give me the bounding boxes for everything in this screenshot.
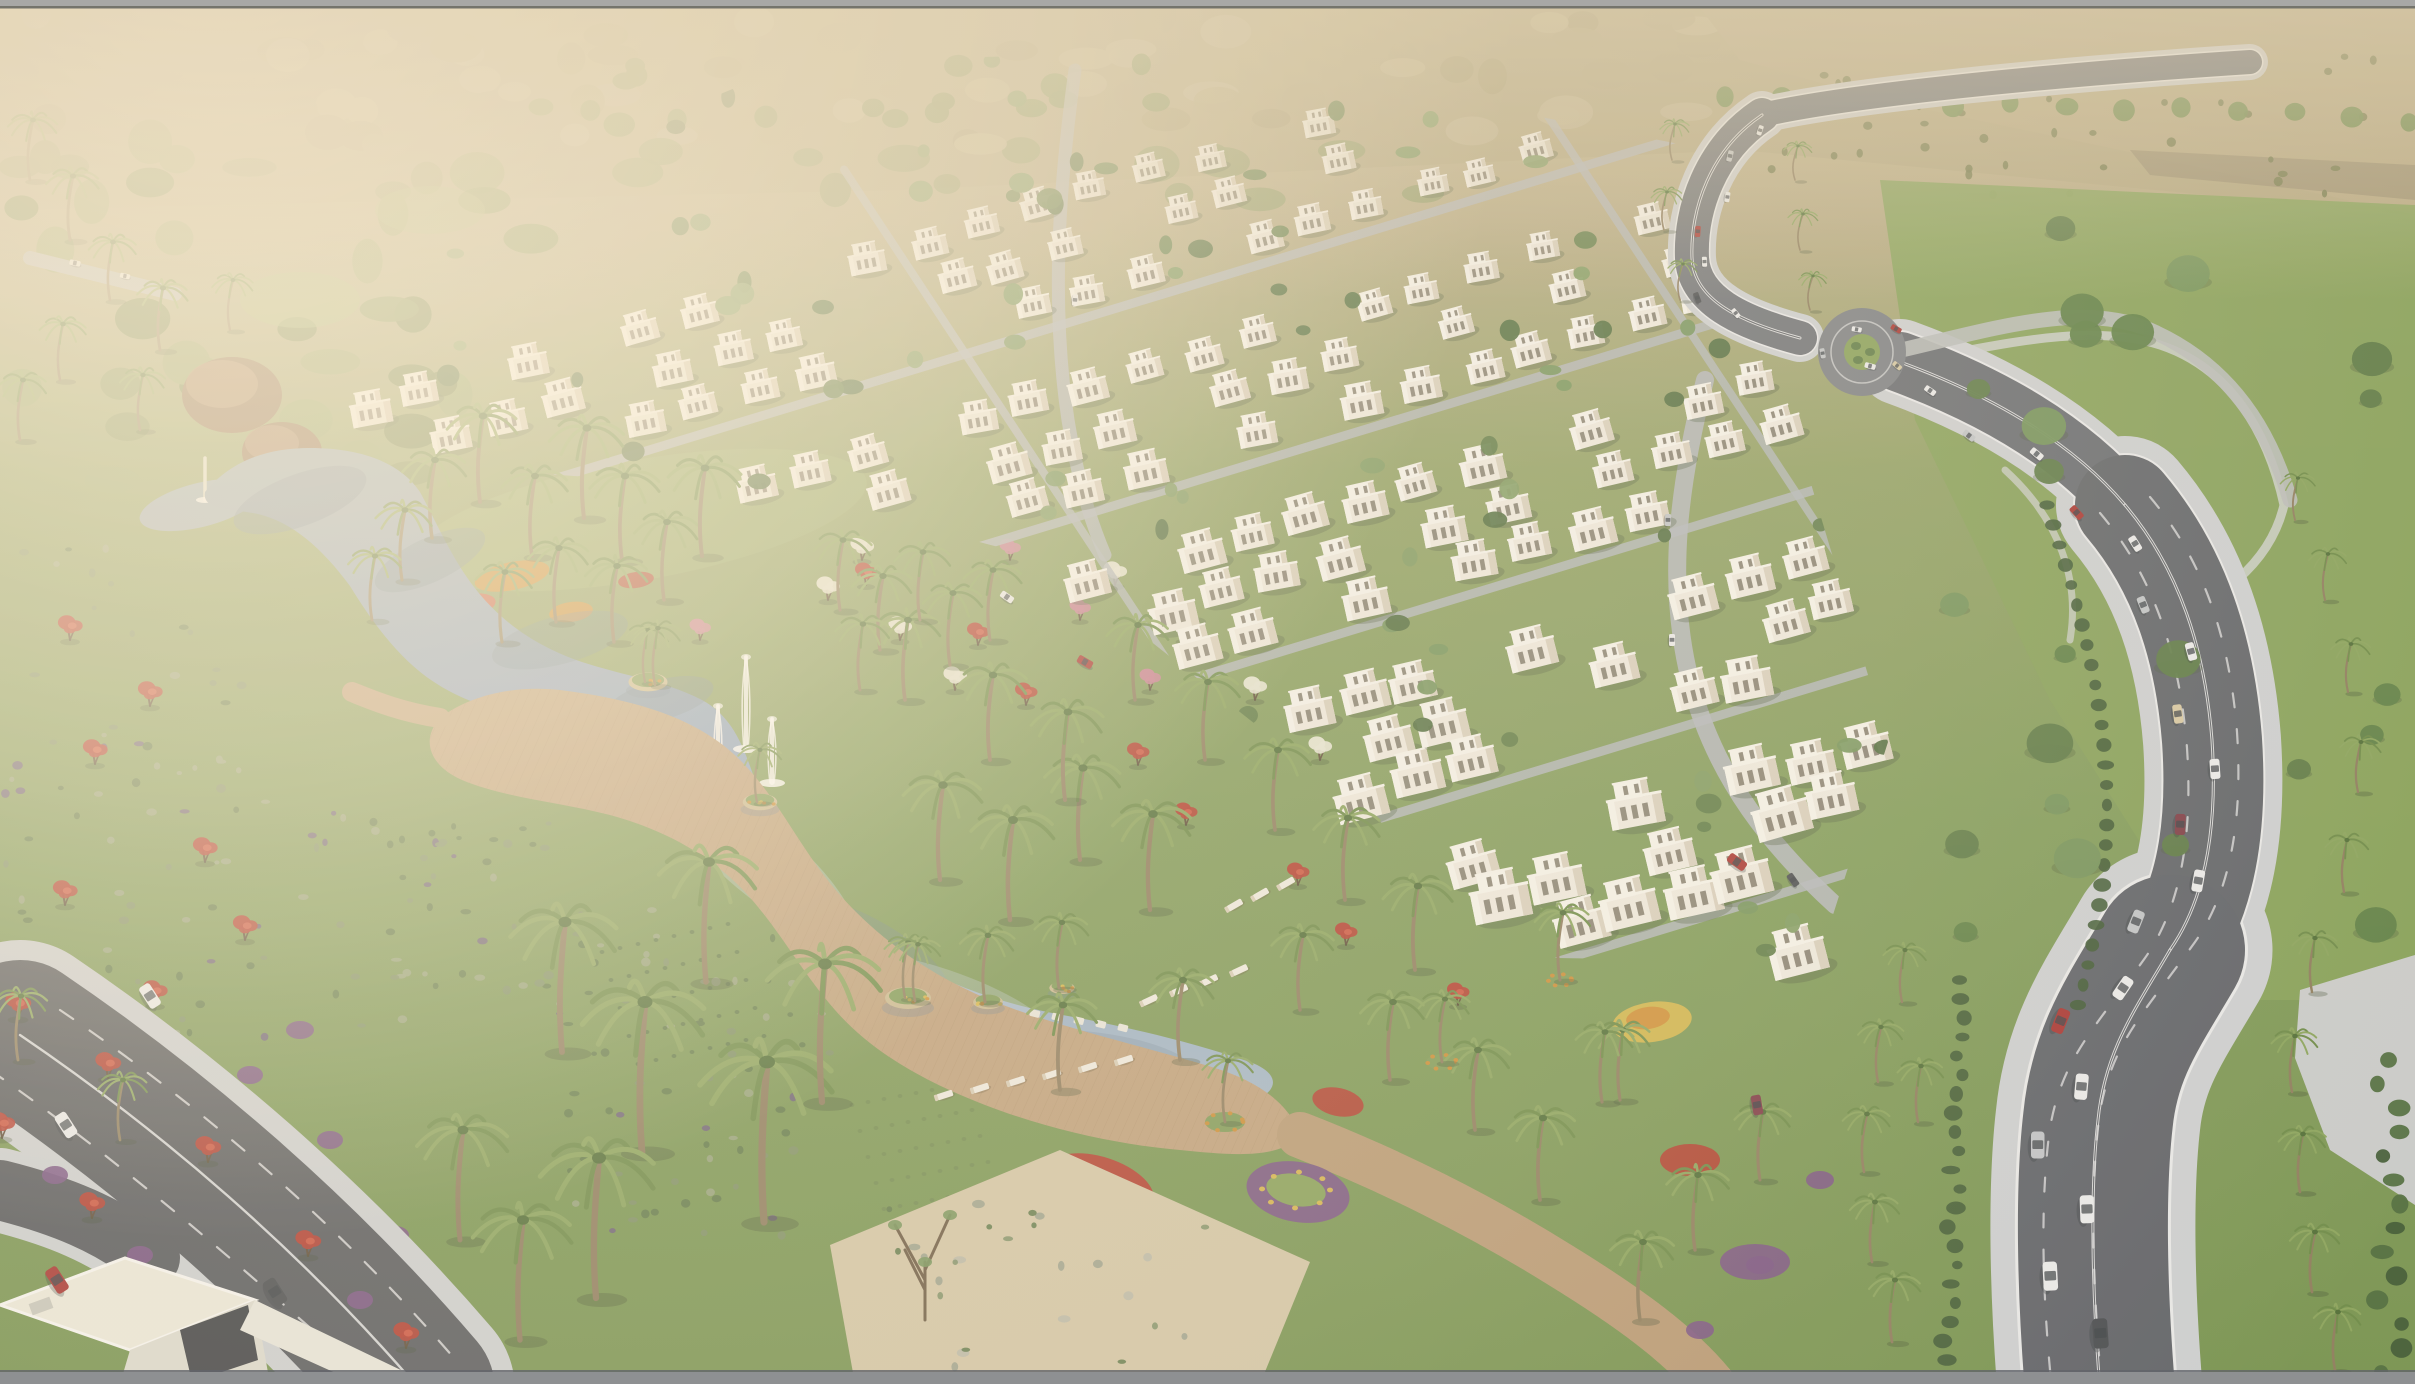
top-frame-bar: [0, 0, 2415, 6]
atmosphere: [0, 0, 2415, 1384]
masterplan-aerial-render: [0, 0, 2415, 1384]
bottom-frame-bar: [0, 1372, 2415, 1384]
scene-svg: [0, 0, 2415, 1384]
